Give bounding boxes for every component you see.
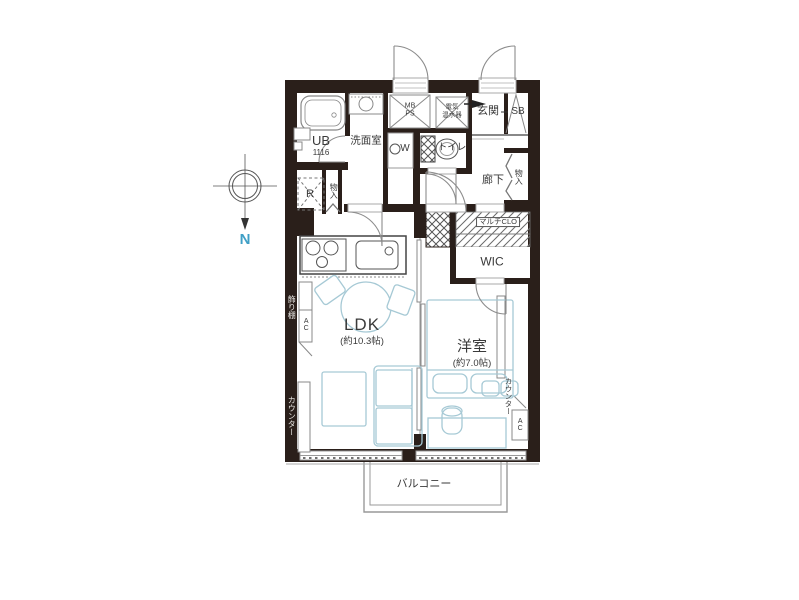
balcony-label: バルコニー	[397, 479, 452, 491]
coffee-table	[322, 372, 366, 426]
multi-closet-label: マルチCLO	[476, 217, 520, 227]
ldk-area-label: (約10.3帖)	[340, 337, 384, 347]
ub-size-label: 1116	[313, 149, 330, 157]
heater-label-2: 温水器	[442, 113, 462, 120]
storage-right-doors	[506, 154, 512, 200]
ac-left-label: AC	[302, 318, 309, 332]
counter-right-strip	[497, 296, 505, 378]
fridge-label: R	[306, 189, 314, 201]
bedroom-label: 洋室	[457, 339, 487, 355]
north-label: N	[240, 232, 251, 248]
storage-left-door	[326, 204, 340, 212]
ps-label: PS	[405, 110, 414, 117]
desk-and-stool	[428, 406, 506, 448]
ac-left-box	[299, 310, 312, 356]
toilet-label: トイレ	[438, 143, 467, 153]
hallway-label: 廊下	[482, 175, 504, 187]
storage-left-label: 物入	[329, 183, 337, 199]
vanity-unit	[349, 94, 383, 114]
ldk-label: LDK	[344, 316, 380, 334]
display-shelf	[299, 282, 312, 310]
heater-label-1: 電気	[446, 105, 459, 112]
bedroom-area-label: (約7.0帖)	[453, 359, 492, 369]
counter-right-label: カウンター	[504, 377, 512, 415]
entrance-label: 玄関	[477, 106, 499, 118]
counter-left-label: カウンター	[287, 396, 295, 436]
bath-faucet	[294, 128, 310, 150]
entrance-step	[472, 135, 528, 139]
compass-icon	[213, 154, 277, 230]
sliding-partition	[417, 238, 425, 434]
ub-label: UB	[312, 134, 330, 148]
wic-label: WIC	[480, 256, 503, 269]
kitchen-counter	[300, 236, 406, 277]
washroom-label: 洗面室	[350, 135, 382, 146]
mb-label: MB	[405, 102, 416, 109]
ac-right-label: AC	[516, 418, 523, 432]
counter-left-strip	[298, 382, 310, 452]
bathtub	[301, 96, 345, 130]
floor-plan-page: { "colors": { "wall": "#2a1f1a", "line":…	[0, 0, 799, 600]
washer-label: W	[400, 144, 409, 155]
shoe-box-label: SB	[511, 107, 524, 118]
display-shelf-label: 飾り棚	[287, 295, 295, 319]
pillar-shaft-hatch	[426, 212, 450, 247]
dropped-wall-hatch	[456, 234, 530, 247]
floor-plan-graphic	[0, 0, 799, 600]
storage-right-label: 物入	[514, 169, 522, 185]
